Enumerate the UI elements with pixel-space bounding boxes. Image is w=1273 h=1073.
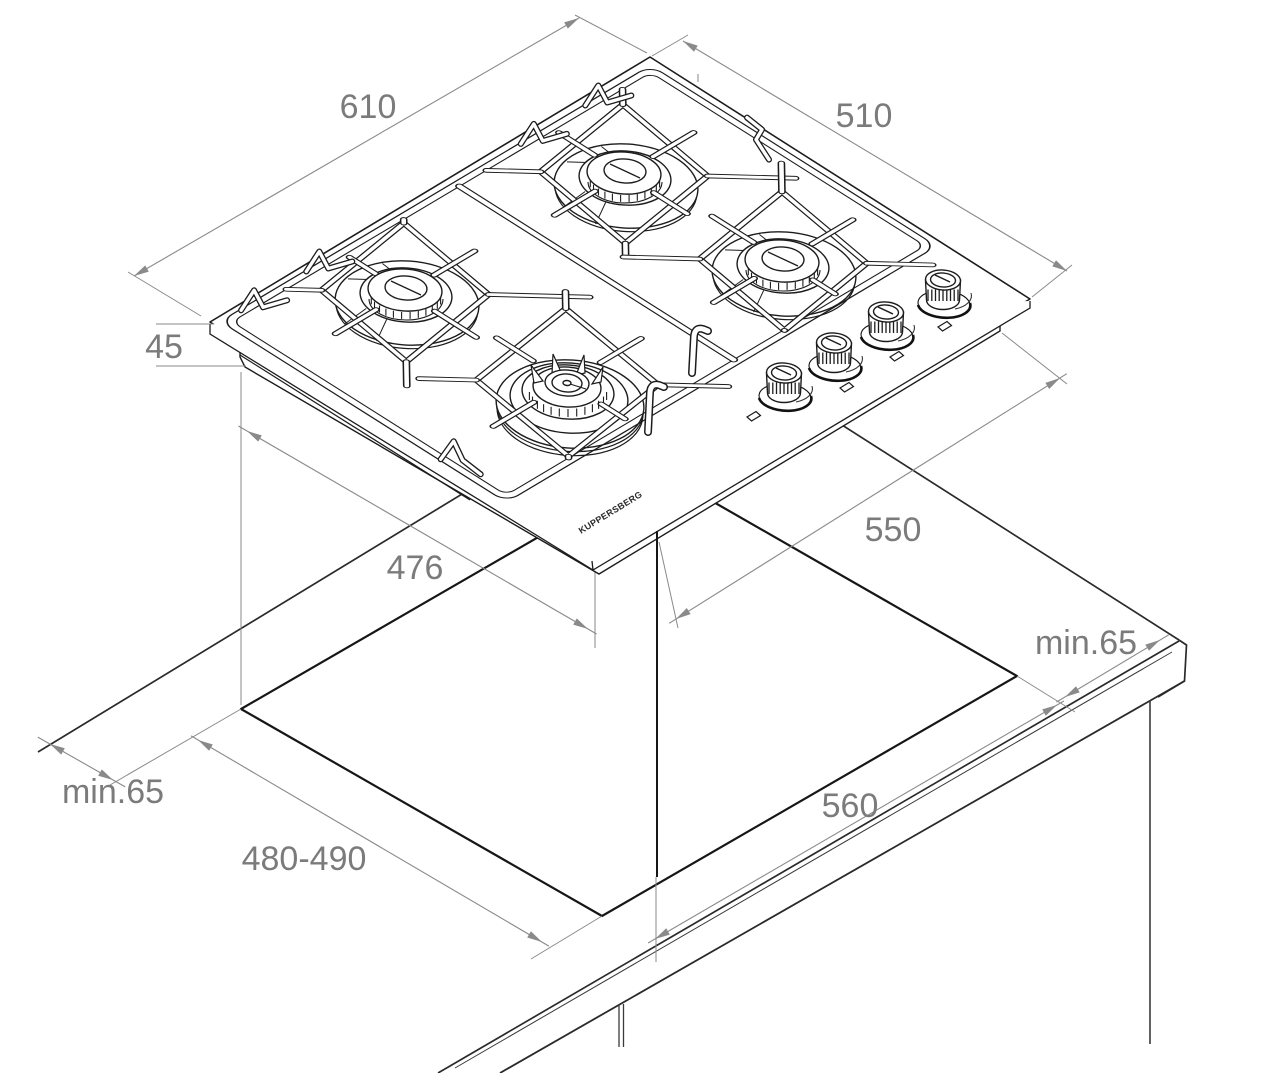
svg-text:560: 560: [822, 787, 879, 825]
svg-text:480-490: 480-490: [242, 840, 367, 878]
svg-text:min.65: min.65: [62, 773, 164, 811]
svg-text:476: 476: [387, 549, 444, 587]
svg-text:610: 610: [340, 88, 397, 126]
svg-text:550: 550: [865, 511, 922, 549]
svg-text:min.65: min.65: [1035, 624, 1137, 662]
svg-text:45: 45: [145, 328, 183, 366]
svg-text:510: 510: [836, 97, 893, 135]
